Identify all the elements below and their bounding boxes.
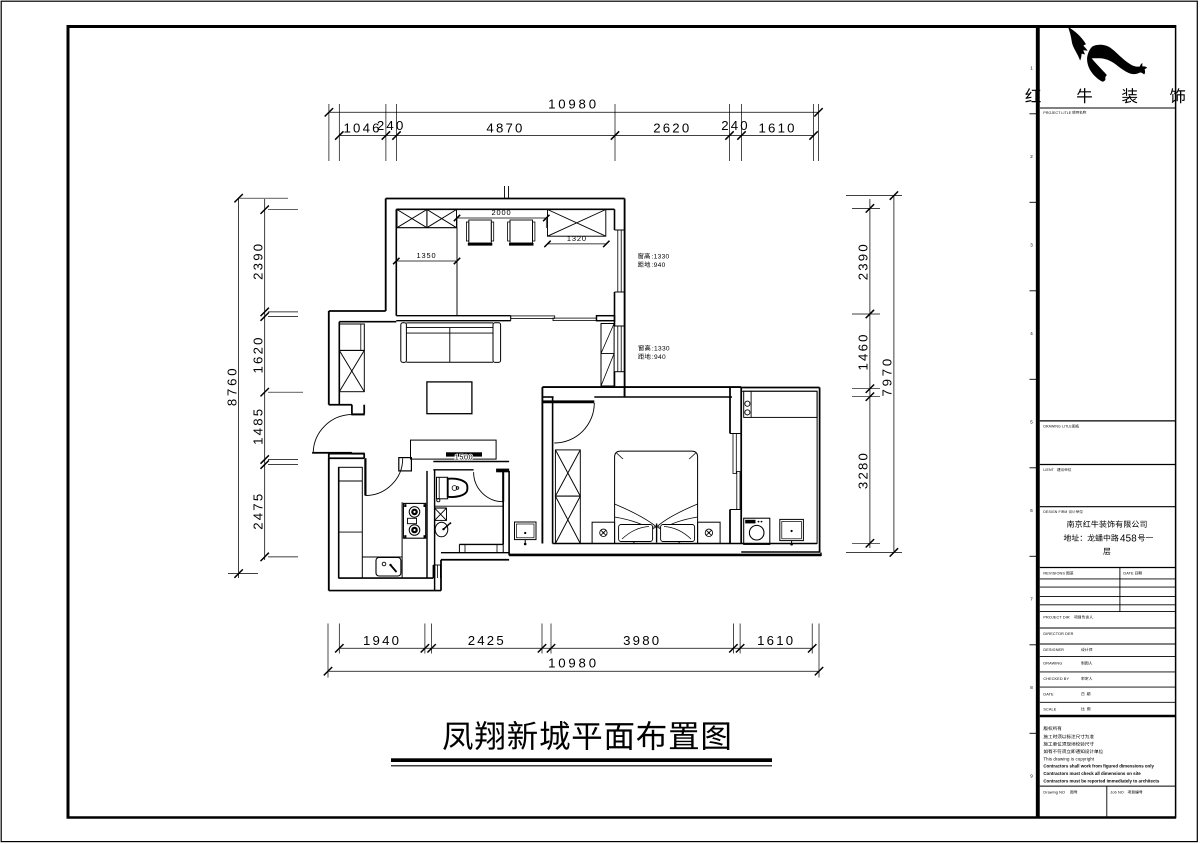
svg-text:240: 240 [721,118,750,133]
svg-text:DATE: DATE [1123,572,1134,576]
svg-text:1485: 1485 [251,407,266,445]
svg-text:2475: 2475 [251,492,266,530]
svg-text:DRAWING: DRAWING [1043,662,1062,666]
svg-text:DATE: DATE [1043,692,1054,696]
svg-text:Contractors must check all dim: Contractors must check all dimensions on… [1043,771,1141,776]
svg-text:2000: 2000 [491,208,511,217]
svg-text:DRAWING LITLE: DRAWING LITLE [1043,425,1072,429]
svg-text:10980: 10980 [548,655,599,670]
svg-text::940: :940 [652,262,666,269]
svg-text:SCALE: SCALE [1043,707,1056,711]
svg-text:DIRECTOR DER: DIRECTOR DER [1043,632,1073,636]
svg-text::1330: :1330 [652,253,670,260]
svg-text:240: 240 [377,118,406,133]
svg-text:2425: 2425 [468,633,506,648]
svg-text:CHECKED BY: CHECKED BY [1043,677,1069,681]
svg-text:PROJECT DIR: PROJECT DIR [1043,616,1070,620]
svg-text:1350: 1350 [416,251,436,260]
svg-text:DESIGN FIRM: DESIGN FIRM [1043,510,1067,514]
svg-text:LIENT: LIENT [1043,468,1054,472]
svg-text:2390: 2390 [856,242,871,280]
svg-text:1460: 1460 [856,332,871,370]
svg-text:7970: 7970 [880,356,895,397]
svg-text:10980: 10980 [548,97,599,112]
svg-text:DESIGNER: DESIGNER [1043,648,1064,652]
svg-text:PROJECT LITLE: PROJECT LITLE [1043,111,1071,115]
svg-text:Drawing NO: Drawing NO [1043,791,1065,795]
svg-text:This drawing is copyright: This drawing is copyright [1043,757,1094,762]
svg-text::940: :940 [652,354,666,361]
svg-text:1500: 1500 [455,452,473,461]
svg-text:1320: 1320 [567,234,587,243]
svg-text:Job NO: Job NO [1110,791,1123,795]
svg-text::1330: :1330 [652,345,670,352]
svg-text:Contractors shall work from fi: Contractors shall work from figured dime… [1043,764,1154,769]
svg-text:1940: 1940 [363,633,401,648]
svg-text:8760: 8760 [224,366,239,407]
svg-text:1610: 1610 [759,121,797,136]
svg-text:3280: 3280 [856,451,871,489]
svg-text:2390: 2390 [251,242,266,280]
svg-text:458: 458 [1120,533,1137,544]
svg-text:4870: 4870 [486,121,524,136]
svg-text:1620: 1620 [251,335,266,373]
svg-text:Contractors must be reported i: Contractors must be reported immediately… [1043,778,1159,783]
svg-text:2620: 2620 [653,121,691,136]
svg-text:3980: 3980 [623,633,661,648]
svg-text:1610: 1610 [757,633,795,648]
svg-text:REVISIONS: REVISIONS [1043,572,1065,576]
